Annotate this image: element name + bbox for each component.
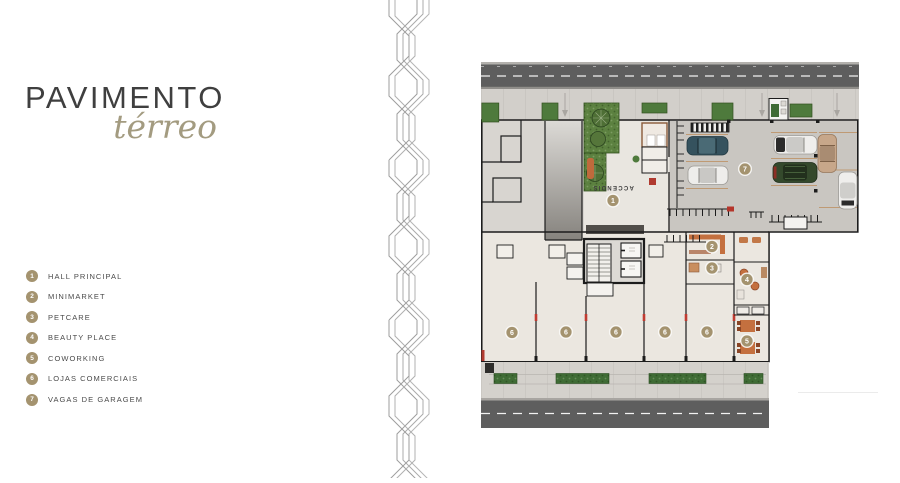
- plan-badge-3: 3: [706, 262, 719, 275]
- legend-label-2: MINIMARKET: [48, 292, 106, 301]
- car-white-vertical: [839, 172, 858, 209]
- floor-plan: ACCENDIS: [481, 62, 859, 433]
- bottom-road: [481, 398, 769, 428]
- plan-badge-2: 2: [706, 240, 719, 253]
- page-title-block: PAVIMENTO térreo: [25, 82, 217, 145]
- legend-label-5: COWORKING: [48, 354, 105, 363]
- pergola: [691, 123, 729, 132]
- legend-item-lojas: 6 LOJAS COMERCIAIS: [26, 373, 143, 385]
- plan-badge-6d: 6: [659, 326, 672, 339]
- plan-badge-6e: 6: [701, 326, 714, 339]
- svg-text:5: 5: [745, 338, 749, 345]
- car-white-left: [688, 166, 728, 185]
- legend-item-coworking: 5 COWORKING: [26, 352, 143, 364]
- utility-box: [485, 363, 494, 373]
- legend-badge-7: 7: [26, 394, 38, 406]
- legend: 1 HALL PRINCIPAL 2 MINIMARKET 3 PETCARE …: [26, 270, 143, 414]
- stairs-icon: [587, 244, 611, 282]
- top-road: [481, 62, 859, 89]
- svg-text:6: 6: [663, 329, 667, 336]
- legend-badge-6: 6: [26, 373, 38, 385]
- car-suv-green: [773, 163, 817, 183]
- planter-far-right: [790, 104, 812, 117]
- technical-box: [769, 99, 788, 121]
- legend-label-4: BEAUTY PLACE: [48, 333, 117, 342]
- svg-text:3: 3: [710, 265, 714, 272]
- legend-item-vagas: 7 VAGAS DE GARAGEM: [26, 394, 143, 406]
- plan-badge-7: 7: [739, 163, 752, 176]
- legend-badge-1: 1: [26, 270, 38, 282]
- planter-left: [482, 103, 499, 122]
- legend-label-7: VAGAS DE GARAGEM: [48, 395, 143, 404]
- hall-label: ACCENDIS: [592, 184, 634, 190]
- hedge-top-right: [712, 103, 733, 120]
- plan-badge-5: 5: [741, 335, 754, 348]
- legend-item-hall: 1 HALL PRINCIPAL: [26, 270, 143, 282]
- decorative-trace-pattern: [383, 0, 435, 483]
- svg-text:1: 1: [611, 198, 615, 205]
- svg-text:6: 6: [614, 329, 618, 336]
- floor-plan-svg: ACCENDIS: [481, 62, 859, 428]
- plan-badge-6b: 6: [560, 326, 573, 339]
- svg-text:6: 6: [564, 329, 568, 336]
- plan-badge-4: 4: [741, 273, 754, 286]
- legend-label-1: HALL PRINCIPAL: [48, 272, 122, 281]
- planter-2: [542, 103, 558, 120]
- trace-pattern-svg: [383, 0, 435, 478]
- car-teal: [687, 137, 728, 156]
- divider-line: [798, 392, 878, 393]
- car-tan-vertical: [818, 135, 837, 173]
- garage-ramp: [545, 121, 582, 240]
- car-white-right: [774, 136, 817, 155]
- legend-label-6: LOJAS COMERCIAIS: [48, 374, 138, 383]
- legend-item-beauty: 4 BEAUTY PLACE: [26, 332, 143, 344]
- legend-badge-3: 3: [26, 311, 38, 323]
- legend-item-petcare: 3 PETCARE: [26, 311, 143, 323]
- svg-text:6: 6: [705, 329, 709, 336]
- legend-badge-5: 5: [26, 352, 38, 364]
- legend-badge-2: 2: [26, 291, 38, 303]
- svg-text:6: 6: [510, 330, 514, 337]
- plan-badge-6a: 6: [506, 326, 519, 339]
- svg-text:7: 7: [743, 166, 747, 173]
- hall-brand-text: ACCENDIS: [592, 184, 634, 190]
- plan-badge-1: 1: [607, 194, 620, 207]
- plan-badge-6c: 6: [610, 326, 623, 339]
- legend-badge-4: 4: [26, 332, 38, 344]
- legend-item-minimarket: 2 MINIMARKET: [26, 291, 143, 303]
- svg-text:4: 4: [745, 277, 749, 284]
- svg-text:2: 2: [710, 244, 714, 251]
- legend-label-3: PETCARE: [48, 313, 91, 322]
- hedge-top-mid: [642, 103, 667, 113]
